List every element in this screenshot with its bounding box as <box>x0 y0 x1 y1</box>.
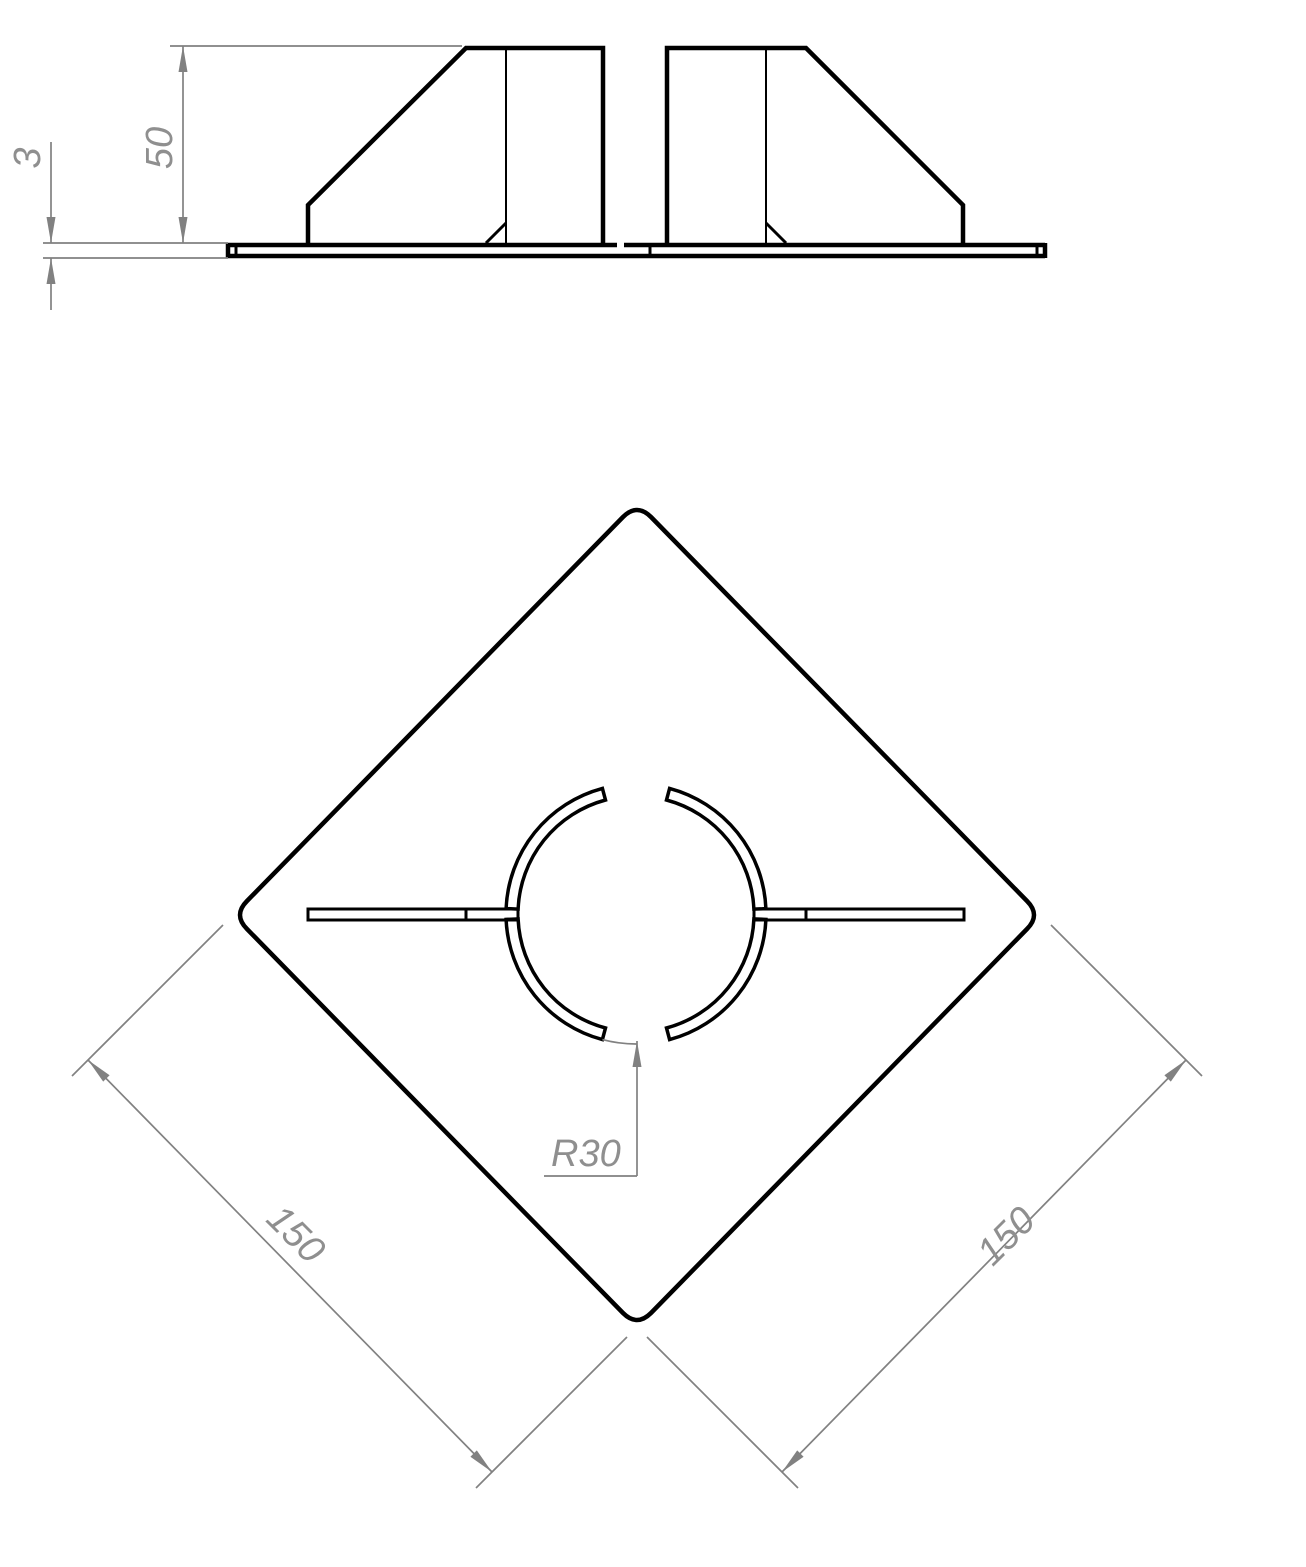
drawing-svg: 50 3 <box>0 0 1306 1567</box>
thickness-arrow-top <box>47 217 56 243</box>
height-dimension-label: 50 <box>139 127 181 169</box>
height-arrow-top <box>179 46 188 72</box>
right-slot <box>754 909 964 920</box>
left-arrow-upper <box>88 1060 110 1082</box>
right-slot-outline <box>754 909 964 920</box>
bottom-right-extension-line <box>647 1337 798 1488</box>
dimension-radius-r30: R30 <box>544 1040 642 1176</box>
bottom-left-extension-line <box>476 1337 627 1488</box>
left-dimension-line <box>88 1060 492 1472</box>
thickness-arrow-bottom <box>47 258 56 284</box>
right-fin-assembly <box>667 48 963 243</box>
plate-plan-outline <box>240 510 1034 1320</box>
base-plate-side <box>228 243 1045 258</box>
dimension-thickness-3: 3 <box>7 142 228 310</box>
right-weld-mark <box>766 223 786 243</box>
left-slot <box>308 909 518 920</box>
left-extension-line <box>72 925 223 1076</box>
right-side-dimension-label: 150 <box>969 1199 1044 1274</box>
ring-arc-top-left <box>506 788 605 909</box>
left-slot-outline <box>308 909 518 920</box>
left-fin-assembly <box>308 48 603 243</box>
right-arrow-upper <box>1164 1060 1186 1082</box>
left-weld-mark <box>486 223 506 243</box>
radius-arrow <box>633 1041 642 1067</box>
thickness-dimension-label: 3 <box>7 147 49 168</box>
dimension-side-right-150: 150 <box>647 925 1202 1488</box>
technical-drawing-sheet: 50 3 <box>0 0 1306 1567</box>
right-arrow-lower <box>782 1450 804 1472</box>
ring-arc-bottom-left <box>506 919 605 1040</box>
side-view: 50 3 <box>7 46 1045 310</box>
left-arrow-lower <box>470 1450 492 1472</box>
ring-arc-bottom-right <box>667 919 766 1040</box>
center-ring-cut <box>506 788 766 1039</box>
right-extension-line <box>1051 925 1202 1076</box>
left-side-dimension-label: 150 <box>258 1197 333 1272</box>
right-fin-outline <box>667 48 963 243</box>
right-dimension-line <box>782 1060 1186 1472</box>
plan-view: R30 150 150 <box>72 510 1202 1488</box>
left-fin-outline <box>308 48 603 243</box>
dimension-side-left-150: 150 <box>72 925 627 1488</box>
radius-arc-mark <box>602 1040 637 1044</box>
height-arrow-bottom <box>179 217 188 243</box>
radius-dimension-label: R30 <box>551 1133 621 1175</box>
dimension-height-50: 50 <box>139 46 462 243</box>
ring-arc-top-right <box>667 788 766 909</box>
